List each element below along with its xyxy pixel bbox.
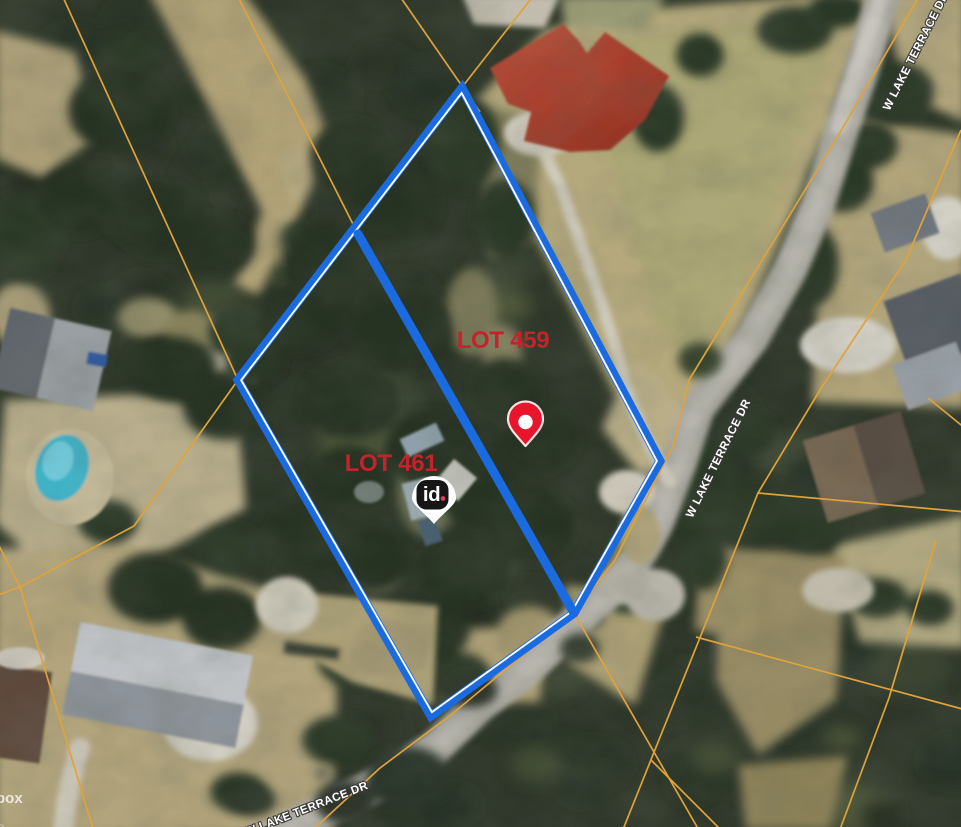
svg-text:LOT 459: LOT 459 — [457, 327, 550, 354]
svg-text:box: box — [0, 790, 23, 807]
svg-text:a: a — [0, 820, 5, 827]
svg-text:id: id — [423, 483, 440, 506]
svg-text:LOT 461: LOT 461 — [345, 450, 438, 477]
